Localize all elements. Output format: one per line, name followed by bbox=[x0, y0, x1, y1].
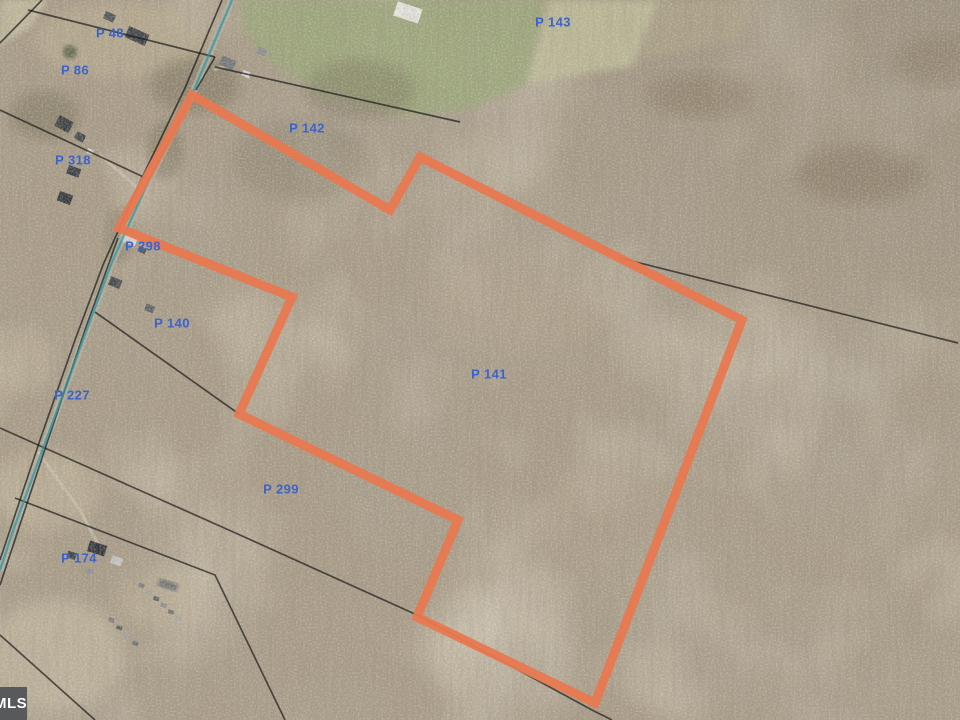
parcel-label: P 299 bbox=[263, 482, 299, 497]
parcel-label: P 142 bbox=[289, 121, 325, 136]
aerial-map[interactable]: P 48P 86P 143P 142P 318P 298P 140P 227P … bbox=[0, 0, 960, 720]
parcel-label: P 227 bbox=[54, 388, 90, 403]
parcel-label: P 141 bbox=[471, 367, 507, 382]
aerial-imagery bbox=[0, 0, 960, 720]
mls-watermark: MLS bbox=[0, 687, 27, 720]
parcel-label: P 48 bbox=[96, 26, 124, 41]
parcel-label: P 143 bbox=[535, 15, 571, 30]
parcel-label: P 140 bbox=[154, 316, 190, 331]
parcel-label: P 298 bbox=[125, 239, 161, 254]
parcel-label: P 318 bbox=[55, 153, 91, 168]
parcel-label: P 174 bbox=[61, 551, 97, 566]
mls-watermark-text: MLS bbox=[0, 695, 27, 712]
parcel-label: P 86 bbox=[61, 63, 89, 78]
